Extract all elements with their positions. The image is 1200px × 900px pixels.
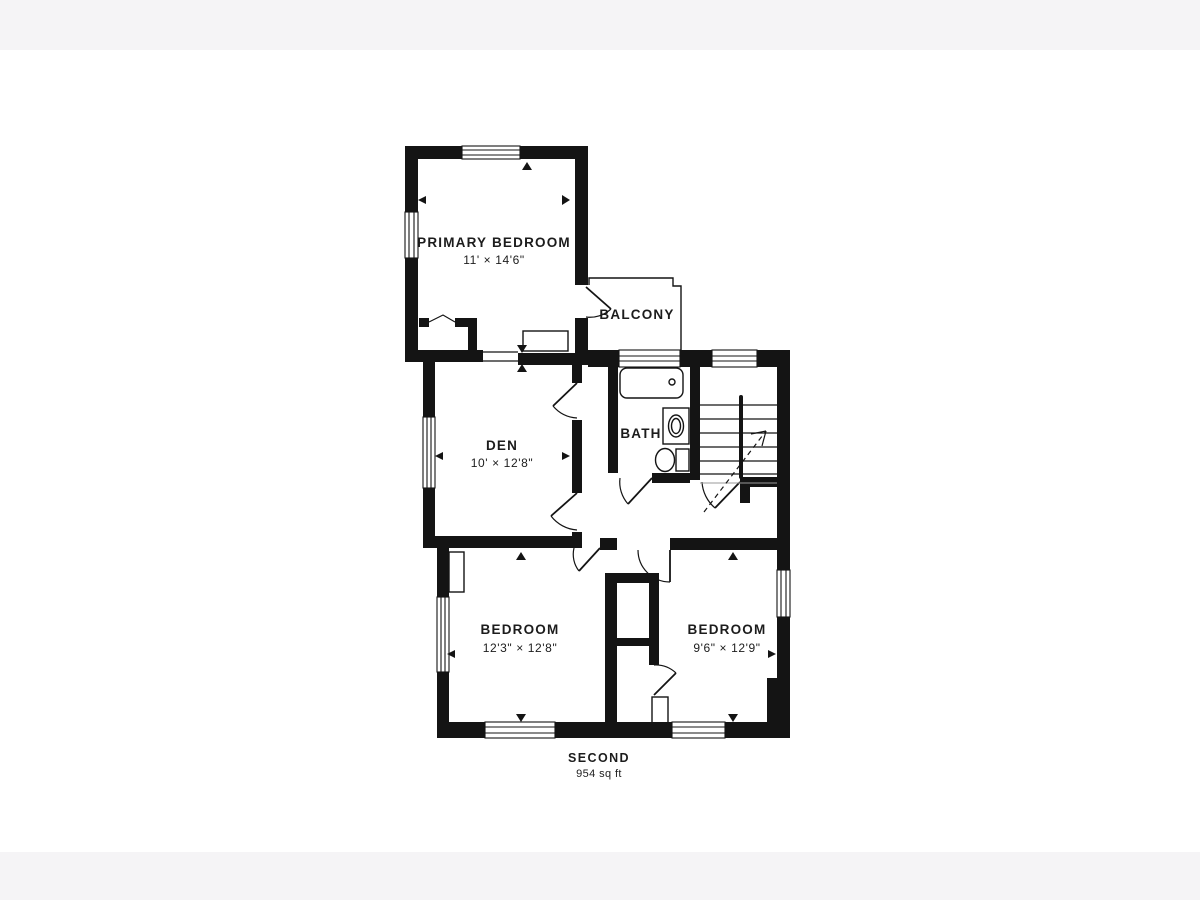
floorplan-drawing: PRIMARY BEDROOM 11' × 14'6" BALCONY DEN …	[0, 0, 1200, 900]
bath-fixtures	[620, 368, 689, 472]
toilet	[656, 449, 690, 472]
chimney-outline	[449, 552, 464, 592]
floor-title-block: SECOND 954 sq ft	[568, 751, 630, 780]
sink-vanity	[663, 408, 689, 444]
floor-area: 954 sq ft	[576, 768, 622, 780]
window	[462, 146, 520, 159]
window	[712, 350, 757, 367]
primary-bedroom-dims: 11' × 14'6"	[463, 253, 525, 267]
floor-name: SECOND	[568, 751, 630, 765]
bedroom-right-dims: 9'6" × 12'9"	[693, 641, 760, 655]
den-label: DEN	[486, 438, 518, 453]
floorplan-page: PRIMARY BEDROOM 11' × 14'6" BALCONY DEN …	[0, 0, 1200, 900]
window	[485, 722, 555, 738]
window	[672, 722, 725, 738]
room-labels: PRIMARY BEDROOM 11' × 14'6" BALCONY DEN …	[417, 235, 766, 655]
bath-label: BATH	[620, 426, 661, 441]
shelf-outline	[652, 697, 668, 723]
bedroom-left-door	[573, 548, 600, 571]
window	[777, 570, 790, 617]
bedroom-left-label: BEDROOM	[481, 622, 560, 637]
ledge-outline	[523, 331, 568, 351]
window	[437, 597, 449, 672]
misc-details	[449, 331, 668, 723]
window	[423, 417, 435, 488]
stair-direction-arrow	[704, 431, 766, 512]
den-lower-door	[551, 493, 577, 530]
interior-walls	[419, 318, 790, 738]
den-dims: 10' × 12'8"	[471, 456, 534, 470]
closet-door	[654, 665, 676, 695]
balcony-label: BALCONY	[599, 307, 674, 322]
window	[405, 212, 418, 258]
window	[619, 350, 680, 367]
den-upper-door	[553, 383, 577, 418]
staircase	[700, 397, 777, 512]
bedroom-right-label: BEDROOM	[688, 622, 767, 637]
bath-door	[620, 478, 652, 504]
primary-closet-bifold	[429, 315, 455, 322]
bathtub	[620, 368, 683, 398]
stairs-door	[702, 482, 740, 508]
primary-bedroom-label: PRIMARY BEDROOM	[417, 235, 571, 250]
bedroom-left-dims: 12'3" × 12'8"	[483, 641, 558, 655]
